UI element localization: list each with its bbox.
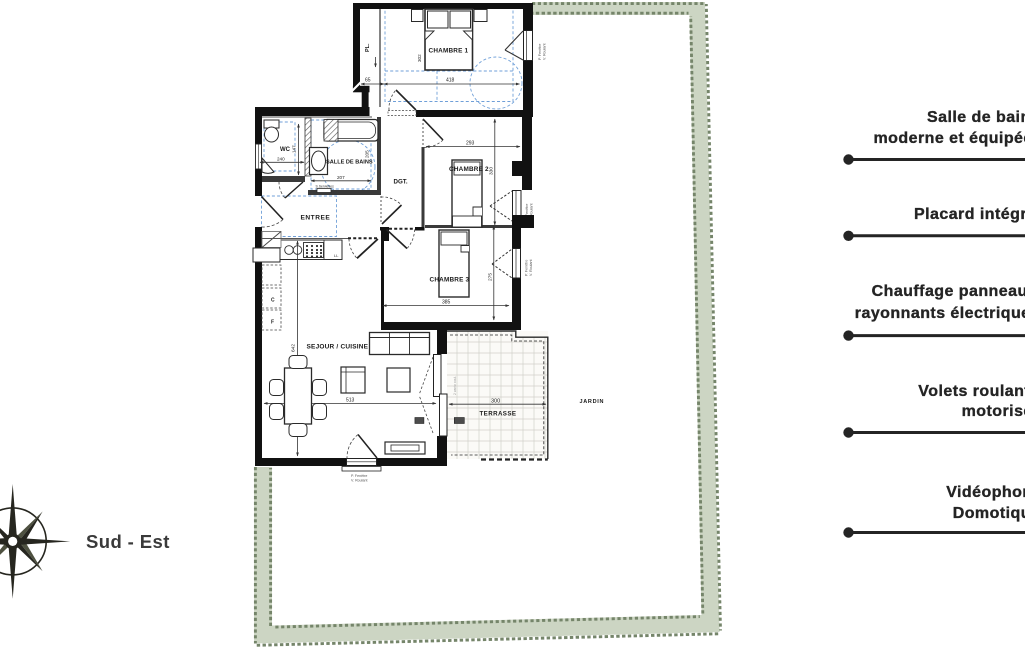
- svg-text:418: 418: [446, 78, 455, 84]
- svg-text:CHAMBRE 3: CHAMBRE 3: [430, 277, 470, 284]
- svg-text:205: 205: [365, 150, 370, 158]
- svg-text:PL.: PL.: [365, 43, 371, 52]
- svg-text:WC: WC: [280, 147, 291, 153]
- svg-text:147: 147: [292, 145, 297, 153]
- svg-text:ENTREE: ENTREE: [301, 215, 331, 222]
- svg-text:Sud - Est: Sud - Est: [86, 531, 170, 552]
- svg-text:240: 240: [277, 157, 285, 162]
- svg-text:TERRASSE: TERRASSE: [480, 411, 517, 418]
- svg-text:LL: LL: [334, 253, 339, 258]
- svg-text:SEJOUR / CUISINE: SEJOUR / CUISINE: [307, 344, 369, 351]
- svg-text:275: 275: [488, 273, 494, 281]
- svg-text:330: 330: [489, 167, 495, 175]
- svg-text:V. Roulant: V. Roulant: [351, 479, 367, 483]
- svg-text:302: 302: [417, 54, 422, 62]
- svg-text:65: 65: [365, 78, 371, 84]
- svg-text:2 vantx coul.: 2 vantx coul.: [453, 376, 457, 395]
- svg-text:P. Fenêtre: P. Fenêtre: [351, 474, 367, 478]
- svg-text:642: 642: [291, 344, 297, 352]
- svg-text:385: 385: [442, 300, 451, 306]
- svg-text:DGT.: DGT.: [394, 179, 408, 186]
- svg-text:S.Serviettes: S.Serviettes: [316, 185, 335, 189]
- svg-text:JARDIN: JARDIN: [580, 399, 605, 405]
- svg-text:CHAMBRE 1: CHAMBRE 1: [429, 48, 469, 55]
- svg-text:F: F: [271, 320, 274, 326]
- svg-text:207: 207: [337, 175, 345, 180]
- svg-text:293: 293: [466, 141, 475, 147]
- svg-text:V. Roulant: V. Roulant: [543, 44, 547, 60]
- svg-text:V. Roulant: V. Roulant: [529, 260, 533, 276]
- svg-text:P. Fenêtre: P. Fenêtre: [538, 44, 542, 60]
- svg-text:300: 300: [491, 398, 500, 404]
- svg-text:P. Fenêtre: P. Fenêtre: [525, 260, 529, 276]
- svg-text:513: 513: [346, 397, 355, 403]
- svg-text:C: C: [271, 298, 275, 304]
- svg-text:CHAMBRE 2: CHAMBRE 2: [449, 166, 489, 173]
- svg-text:SALLE DE BAINS: SALLE DE BAINS: [326, 160, 373, 166]
